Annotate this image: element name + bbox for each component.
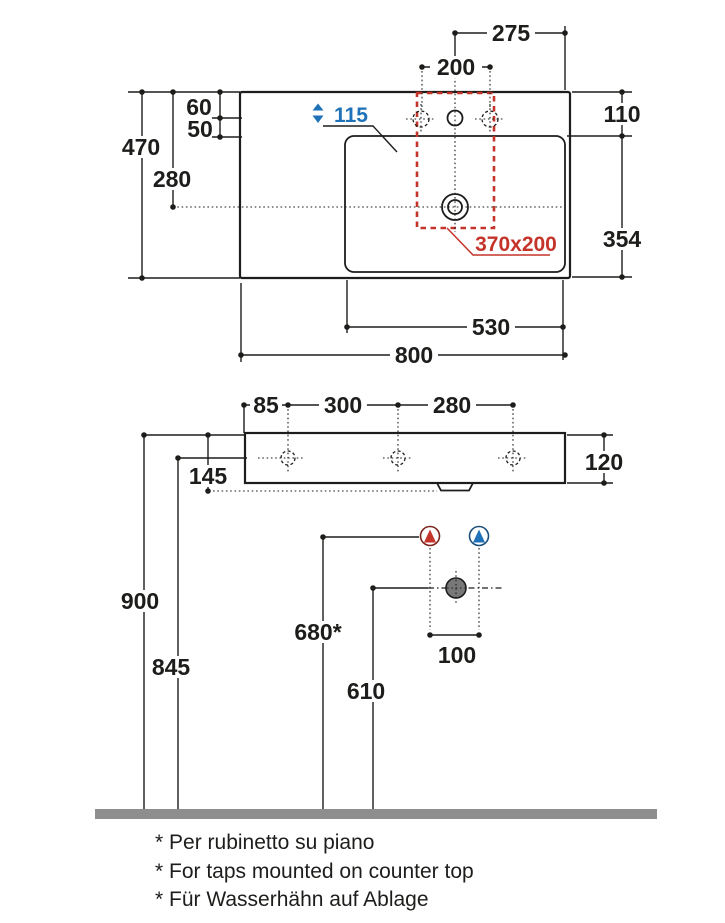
dim-200-label: 200: [437, 54, 475, 80]
dim-front-top-chain: 85 300 280: [241, 392, 516, 443]
dim-680-label: 680*: [294, 619, 341, 645]
cutout-callout: 370x200: [447, 228, 557, 256]
cold-water-icon: [470, 527, 489, 546]
dim-800-label: 800: [395, 342, 433, 368]
mounting-hole-3: [498, 444, 528, 472]
dim-110: 110: [598, 89, 646, 139]
dim-280-label: 280: [153, 166, 191, 192]
cutout-size-label: 370x200: [475, 233, 557, 256]
dim-530: 530: [344, 280, 566, 360]
dim-845-label: 845: [152, 654, 191, 680]
dim-300-label: 300: [324, 392, 362, 418]
dim-354-label: 354: [603, 226, 642, 252]
optional-hole-right: [475, 104, 505, 134]
tap-hole: [448, 111, 463, 126]
dim-470-label: 470: [122, 134, 160, 160]
technical-drawing-page: 275 200 470 280: [0, 0, 725, 923]
hot-water-icon: [421, 527, 440, 546]
footnotes: * Per rubinetto su piano * For taps moun…: [155, 831, 474, 911]
dim-60-50: 60 50: [186, 89, 223, 142]
dim-85-label: 85: [253, 392, 279, 418]
dim-530-label: 530: [472, 314, 510, 340]
footnote-english: * For taps mounted on counter top: [155, 860, 474, 883]
optional-hole-left: [406, 104, 436, 134]
floor-line: [95, 809, 657, 819]
siphon-recess: [437, 483, 473, 491]
dim-354: 354: [598, 136, 646, 280]
dim-200: 200: [419, 54, 493, 110]
dim-100: 100: [427, 548, 482, 668]
basin-depth-label: 115: [334, 104, 368, 127]
dim-100-label: 100: [438, 642, 476, 668]
mounting-hole-2: [383, 444, 413, 472]
depth-arrow-down-icon: [313, 116, 324, 124]
cutout-rect: [417, 93, 494, 228]
installation-view: 900 845 680* 610 100: [95, 435, 657, 819]
basin-depth-leader-line: [323, 126, 397, 152]
dim-275-label: 275: [492, 20, 531, 46]
washbasin-dimension-diagram: 275 200 470 280: [0, 0, 725, 923]
footnote-german: * Für Wasserhähn auf Ablage: [155, 888, 429, 911]
dim-50-label: 50: [187, 116, 213, 142]
top-view: 275 200 470 280: [117, 20, 646, 368]
dim-800: 800: [238, 283, 568, 368]
dim-120: 120: [567, 432, 628, 486]
dim-280-front-label: 280: [433, 392, 471, 418]
front-view: 85 300 280 120 145: [141, 392, 628, 494]
dim-110-label: 110: [603, 101, 640, 127]
dim-610-label: 610: [347, 678, 385, 704]
dim-145-label: 145: [189, 463, 228, 489]
dim-120-label: 120: [585, 449, 623, 475]
mounting-hole-1: [258, 444, 303, 472]
dim-900-label: 900: [121, 588, 159, 614]
wall-drain: [428, 571, 503, 605]
footnote-italian: * Per rubinetto su piano: [155, 831, 374, 854]
depth-arrow-up-icon: [313, 104, 324, 111]
basin-depth-callout: 115: [313, 104, 398, 153]
